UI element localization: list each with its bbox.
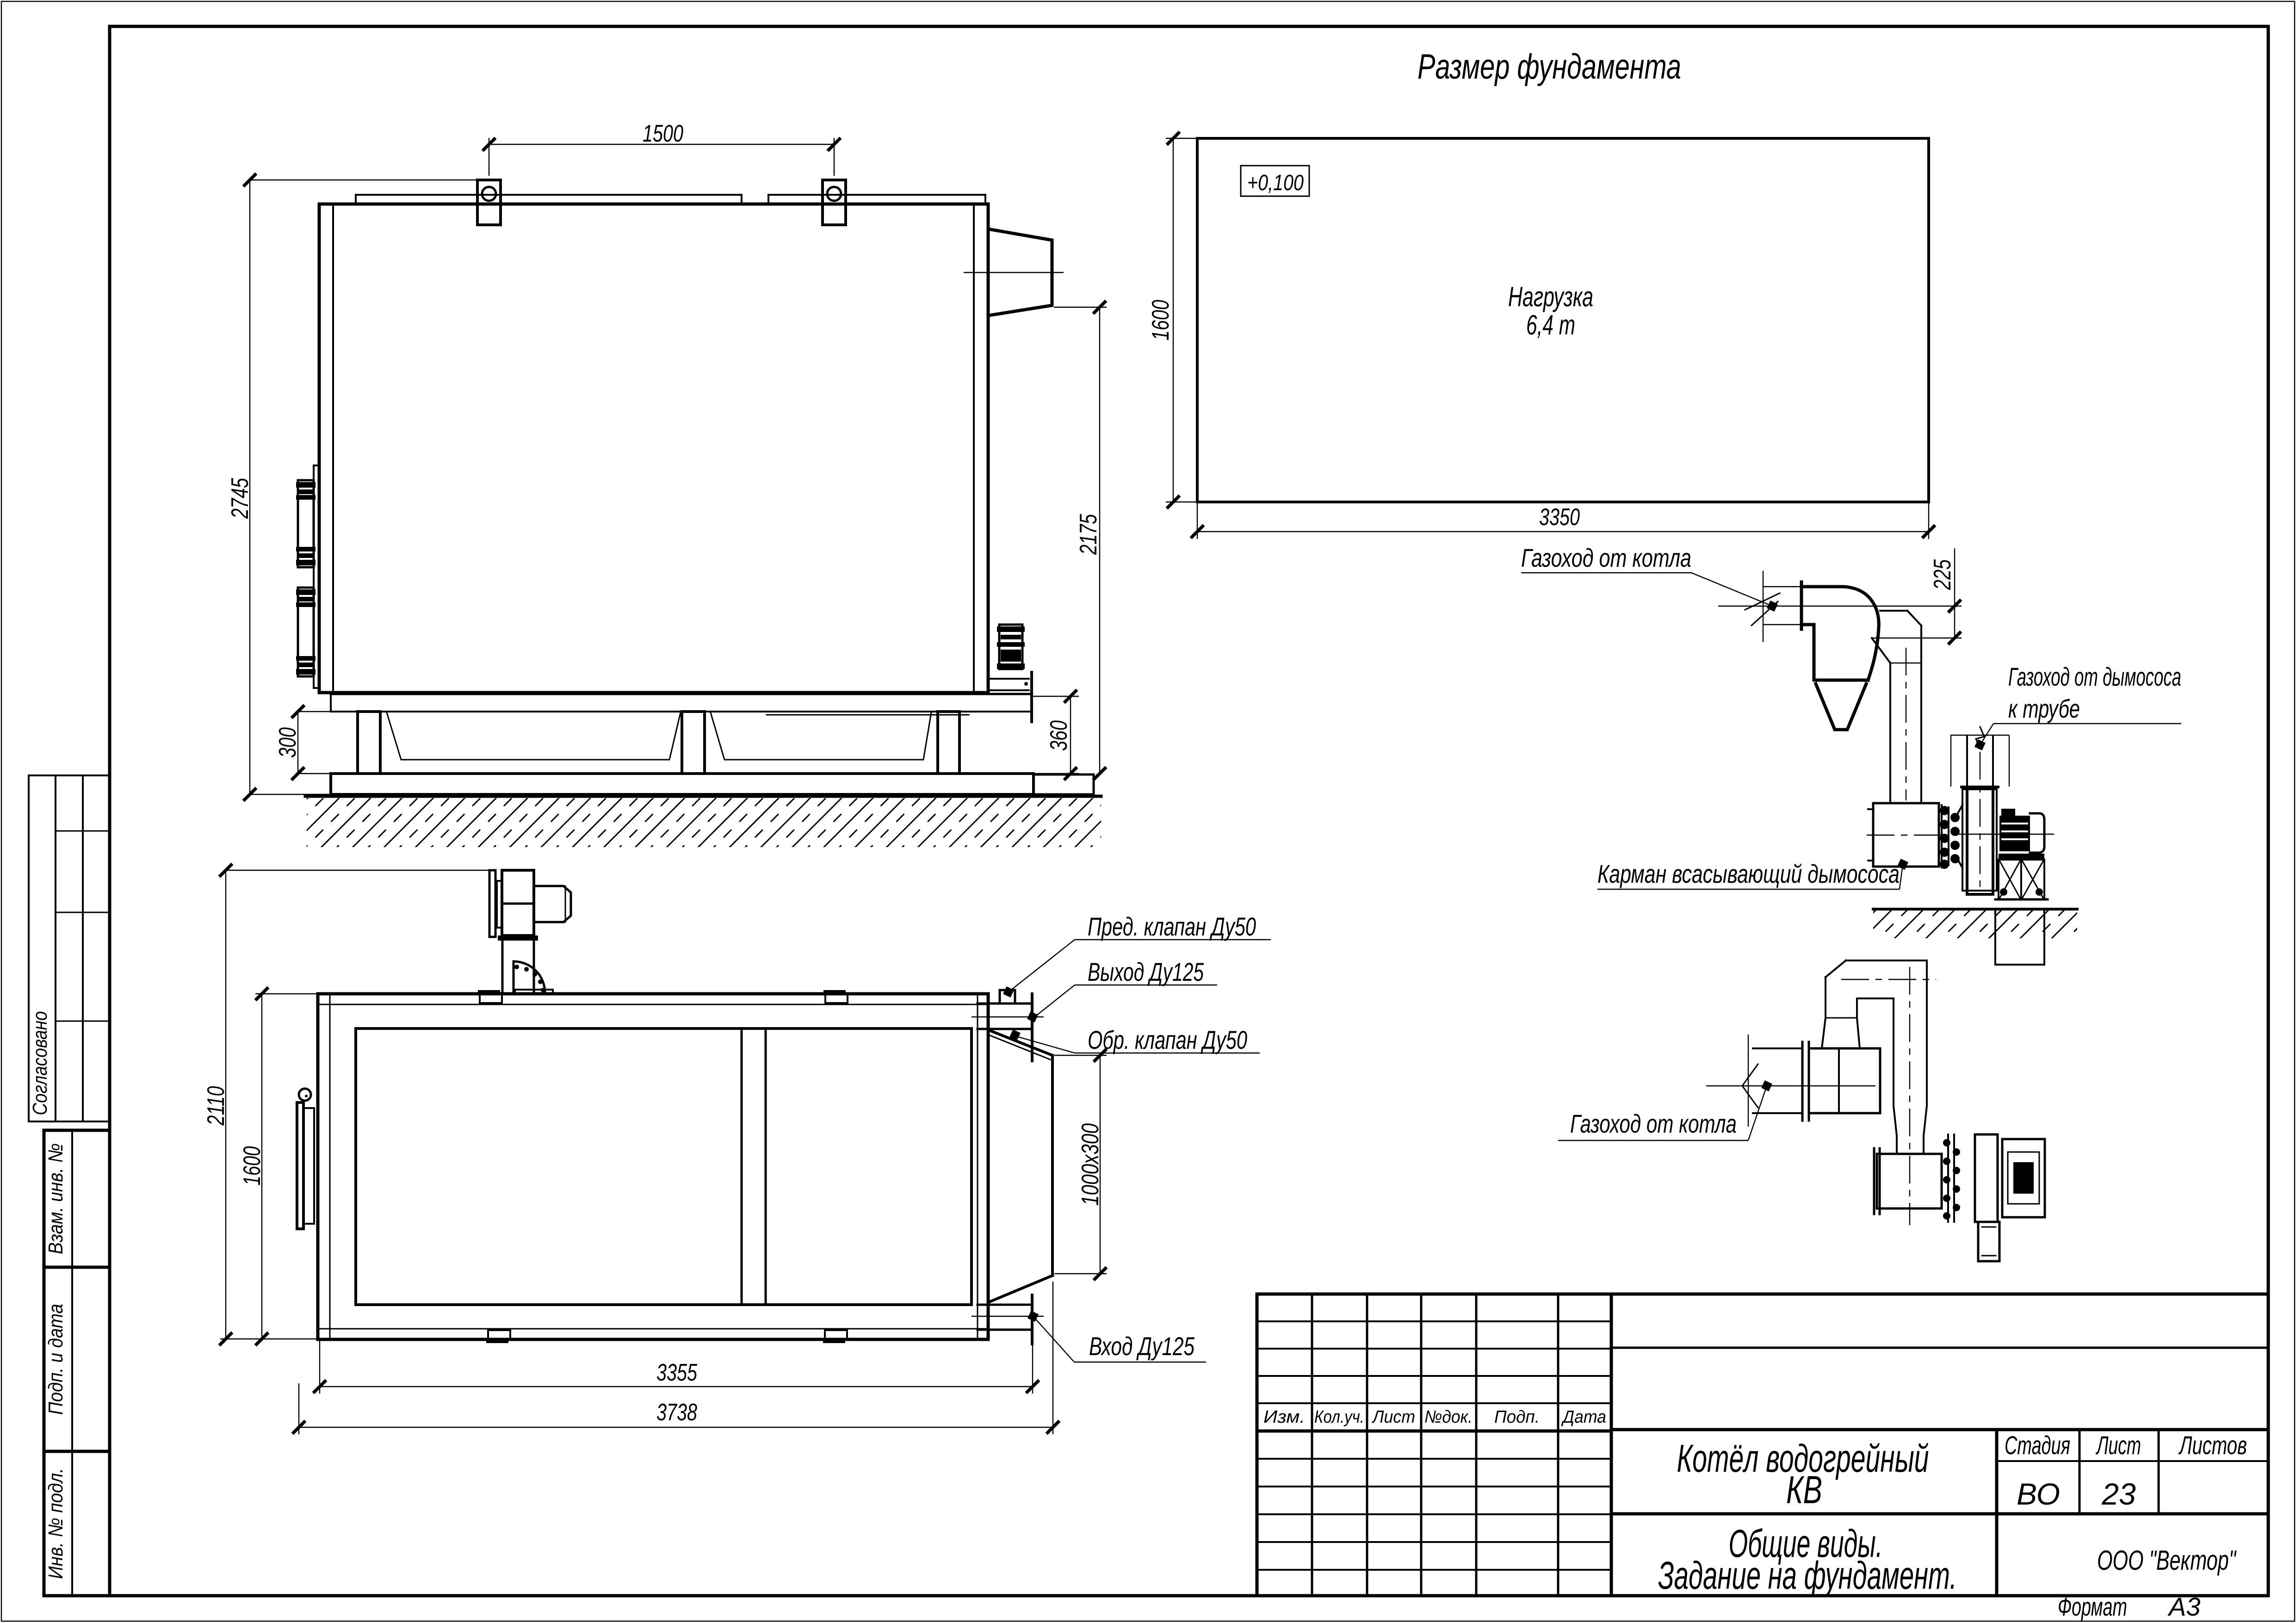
svg-text:2175: 2175	[1075, 514, 1102, 555]
svg-text:Согласовано: Согласовано	[29, 1011, 51, 1115]
svg-text:3738: 3738	[656, 1399, 697, 1426]
svg-text:Листов: Листов	[2178, 1431, 2247, 1460]
svg-text:Лист: Лист	[2096, 1431, 2141, 1460]
svg-text:Выход Ду125: Выход Ду125	[1088, 957, 1204, 986]
svg-text:360: 360	[1046, 720, 1072, 751]
svg-text:300: 300	[274, 727, 301, 758]
svg-text:Взам. инв. №: Взам. инв. №	[44, 1143, 67, 1254]
svg-text:Газоход от котла: Газоход от котла	[1521, 543, 1691, 572]
svg-text:Карман всасывающий дымососа: Карман всасывающий дымососа	[1597, 859, 1900, 888]
svg-text:1500: 1500	[643, 120, 683, 147]
svg-text:Стадия: Стадия	[2005, 1431, 2070, 1460]
svg-text:Лист: Лист	[1371, 1407, 1415, 1427]
svg-text:к трубе: к трубе	[2008, 694, 2080, 723]
svg-text:Инв. № подл.: Инв. № подл.	[44, 1468, 67, 1579]
svg-text:6,4 т: 6,4 т	[1526, 310, 1575, 341]
svg-text:23: 23	[2101, 1477, 2136, 1511]
svg-text:ВО: ВО	[2017, 1477, 2060, 1511]
svg-text:3350: 3350	[1539, 504, 1580, 531]
svg-text:Кол.уч.: Кол.уч.	[1314, 1407, 1364, 1427]
svg-text:Обр. клапан Ду50: Обр. клапан Ду50	[1088, 1025, 1247, 1054]
svg-text:2110: 2110	[203, 1086, 229, 1126]
svg-text:Дата: Дата	[1561, 1407, 1606, 1427]
svg-text:Газоход от дымососа: Газоход от дымососа	[2008, 662, 2181, 691]
svg-text:Размер фундамента: Размер фундамента	[1417, 47, 1681, 87]
svg-text:1600: 1600	[239, 1146, 266, 1185]
svg-text:+0,100: +0,100	[1247, 171, 1304, 195]
svg-text:Нагрузка: Нагрузка	[1508, 281, 1593, 312]
svg-text:Формат: Формат	[2058, 1592, 2127, 1621]
svg-text:225: 225	[1929, 559, 1956, 590]
svg-text:№док.: №док.	[1424, 1407, 1473, 1427]
svg-text:1600: 1600	[1147, 300, 1174, 341]
svg-text:Газоход от котла: Газоход от котла	[1570, 1109, 1737, 1138]
svg-text:КВ: КВ	[1786, 1468, 1822, 1511]
svg-text:Пред. клапан Ду50: Пред. клапан Ду50	[1088, 912, 1256, 941]
svg-text:ООО "Вектор": ООО "Вектор"	[2097, 1545, 2237, 1576]
svg-text:2745: 2745	[227, 477, 254, 519]
svg-text:Подп.: Подп.	[1494, 1407, 1540, 1427]
svg-text:3355: 3355	[656, 1359, 698, 1386]
svg-text:1000х300: 1000х300	[1077, 1123, 1104, 1206]
svg-text:Подп. и дата: Подп. и дата	[44, 1304, 67, 1415]
svg-text:А3: А3	[2167, 1592, 2201, 1621]
svg-text:Задание на фундамент.: Задание на фундамент.	[1658, 1554, 1957, 1597]
svg-text:Вход Ду125: Вход Ду125	[1089, 1332, 1195, 1361]
svg-text:Изм.: Изм.	[1263, 1407, 1305, 1427]
